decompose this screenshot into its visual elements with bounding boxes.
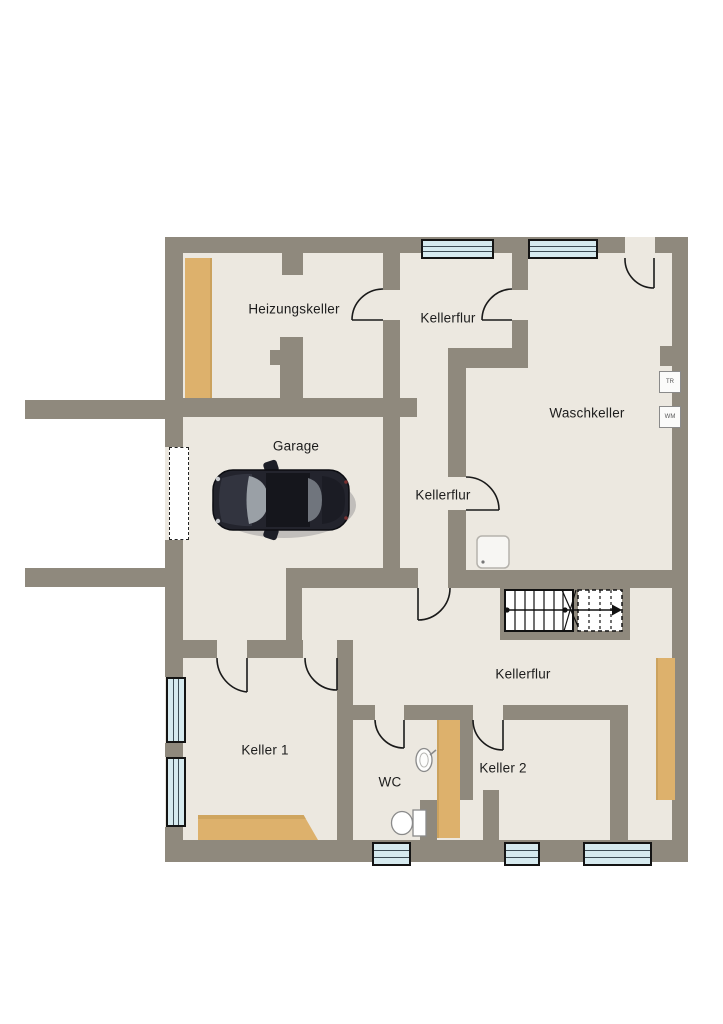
room-label-kellerflur-upper: Kellerflur <box>420 311 475 326</box>
door-keller2 <box>473 720 503 750</box>
room-label-heizungskeller: Heizungskeller <box>248 302 339 317</box>
washing-machine-label: WM <box>665 414 676 420</box>
room-label-garage: Garage <box>273 439 319 454</box>
car-roof <box>266 473 310 527</box>
room-label-kellerflur-lower: Kellerflur <box>495 667 550 682</box>
door-garage-keller1 <box>217 658 247 692</box>
room-label-keller1: Keller 1 <box>241 743 288 758</box>
car <box>212 459 356 541</box>
toilet <box>392 810 427 836</box>
room-label-waschkeller: Waschkeller <box>549 406 624 421</box>
door-waschkeller-upper <box>482 289 512 320</box>
door-exterior <box>625 258 654 288</box>
door-waschkeller-lower <box>466 477 499 510</box>
shower-tray <box>477 536 509 568</box>
door-heizungskeller <box>352 289 383 320</box>
room-label-kellerflur-middle: Kellerflur <box>415 488 470 503</box>
room-label-keller2: Keller 2 <box>479 761 526 776</box>
staircase <box>504 590 622 631</box>
sink <box>416 749 436 772</box>
plan-symbols <box>0 0 723 1024</box>
floor-plan: TR WM Heizungskeller Kellerflur Waschkel… <box>0 0 723 1024</box>
door-corridor-bottom <box>418 588 450 620</box>
room-label-wc: WC <box>379 775 402 790</box>
washing-machine: WM <box>659 406 681 428</box>
door-corridor-keller1 <box>305 658 337 690</box>
door-wc <box>375 720 404 748</box>
dryer-label: TR <box>666 379 674 385</box>
dryer: TR <box>659 371 681 393</box>
